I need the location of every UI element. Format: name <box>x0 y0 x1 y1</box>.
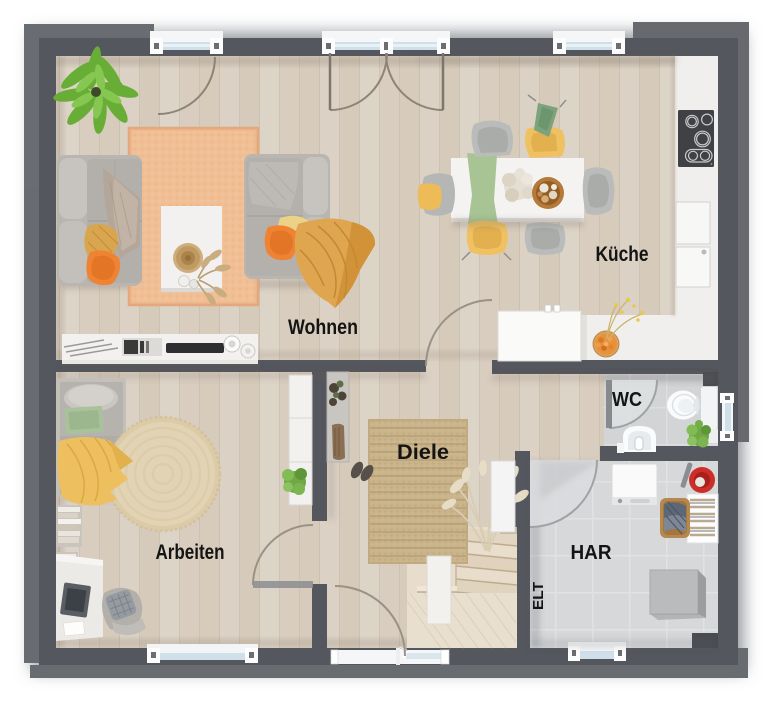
svg-text:Küche: Küche <box>596 243 649 266</box>
svg-text:WC: WC <box>612 389 642 411</box>
svg-text:HAR: HAR <box>571 542 613 564</box>
svg-text:Arbeiten: Arbeiten <box>156 541 225 564</box>
svg-text:Diele: Diele <box>397 441 449 464</box>
svg-text:ELT: ELT <box>530 582 547 610</box>
svg-text:Wohnen: Wohnen <box>288 316 358 339</box>
